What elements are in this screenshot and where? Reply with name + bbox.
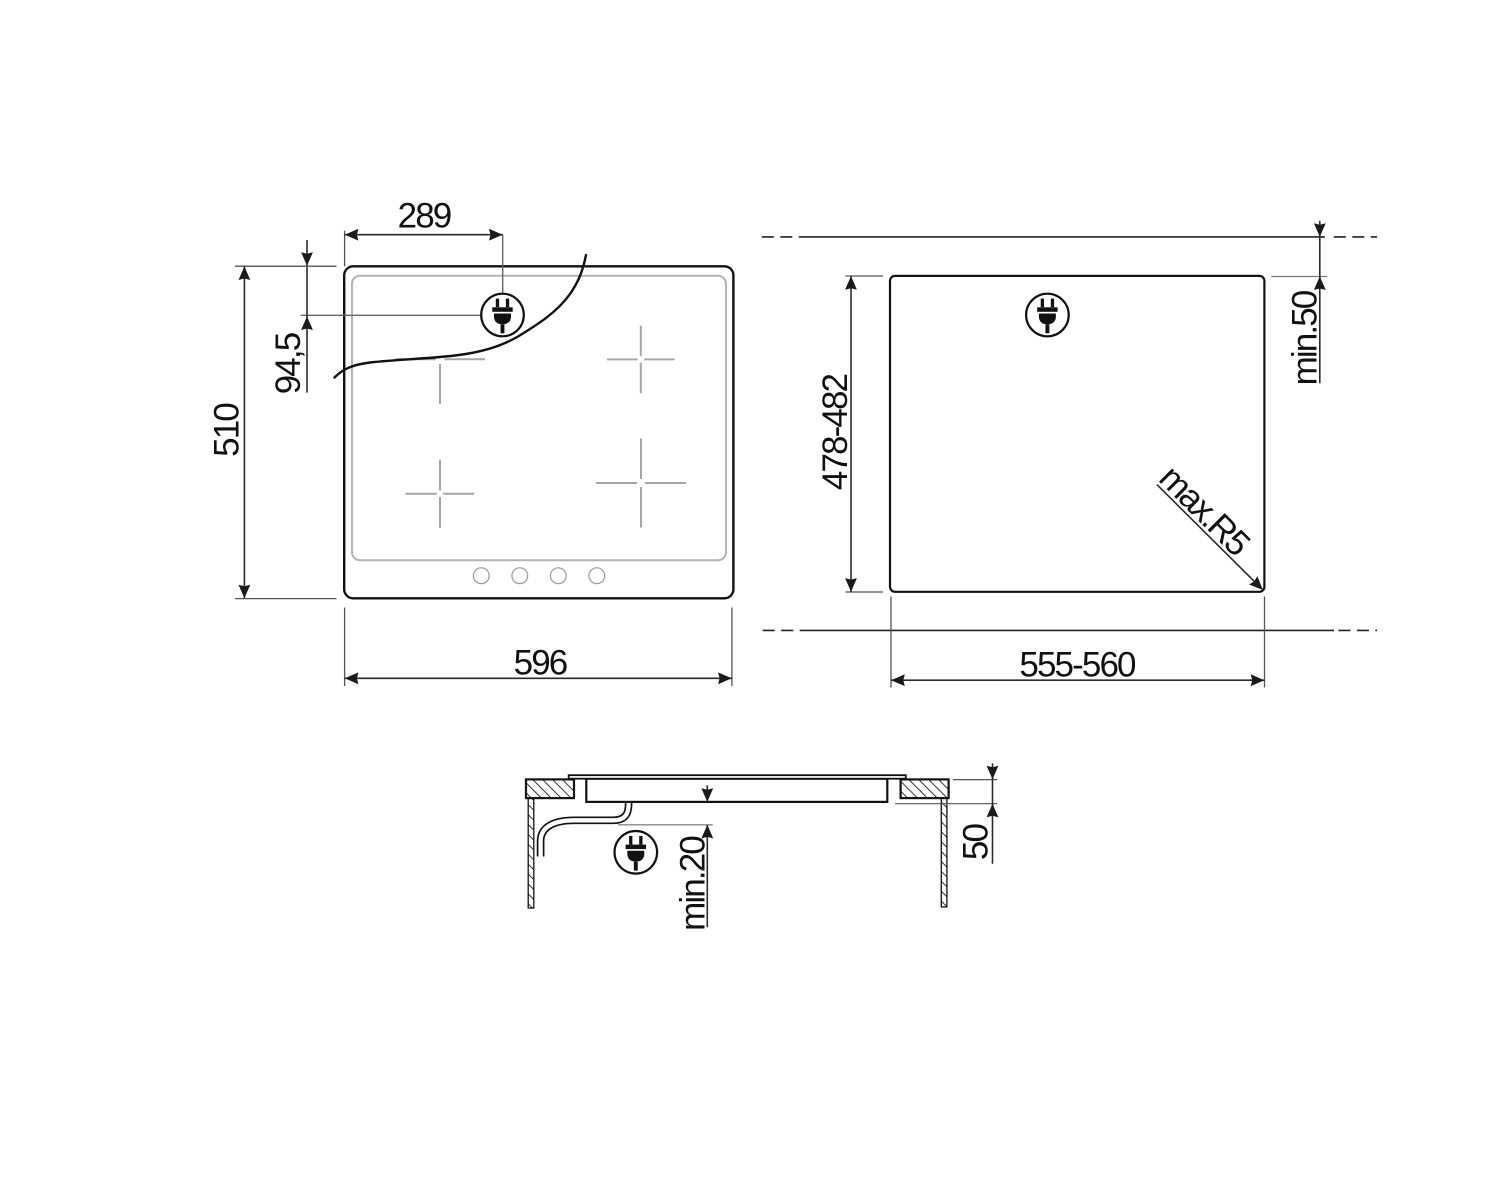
svg-text:510: 510 (208, 403, 247, 457)
svg-text:min.20: min.20 (674, 836, 713, 931)
svg-text:min.50: min.50 (1286, 290, 1325, 385)
svg-text:289: 289 (398, 197, 451, 236)
svg-text:50: 50 (957, 824, 996, 861)
svg-text:555-560: 555-560 (1019, 645, 1136, 684)
svg-text:478-482: 478-482 (816, 374, 855, 490)
svg-text:94,5: 94,5 (269, 333, 308, 394)
svg-text:596: 596 (514, 644, 567, 683)
